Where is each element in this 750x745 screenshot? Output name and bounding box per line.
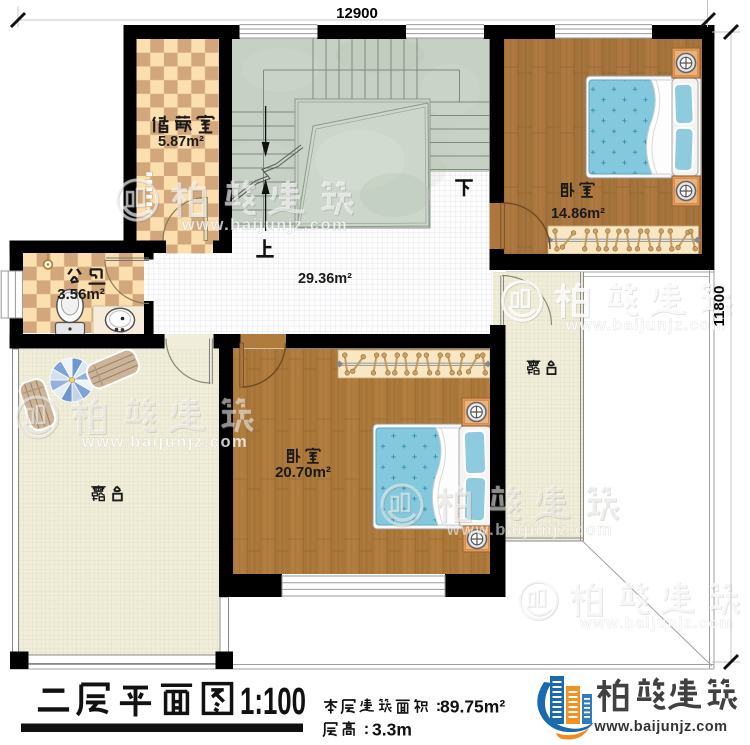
svg-text:1:100: 1:100 <box>240 681 306 723</box>
svg-text:11800: 11800 <box>711 286 728 327</box>
svg-text:3.56m²: 3.56m² <box>57 286 105 303</box>
svg-text:www.baijunjz.com: www.baijunjz.com <box>579 615 735 632</box>
svg-text:3.3m: 3.3m <box>372 720 412 740</box>
svg-text:29.36m²: 29.36m² <box>298 271 352 287</box>
svg-text:www.baijunjz.com: www.baijunjz.com <box>564 317 726 334</box>
svg-text:12900: 12900 <box>336 5 378 22</box>
svg-text:89.75m²: 89.75m² <box>440 697 505 717</box>
svg-text:www.baijunjz.com: www.baijunjz.com <box>446 521 613 539</box>
svg-text:www.baijunjz.com: www.baijunjz.com <box>181 216 348 234</box>
svg-text:5.87m²: 5.87m² <box>158 134 204 150</box>
svg-text:www.baijunjz.com: www.baijunjz.com <box>81 433 248 451</box>
svg-text:14.86m²: 14.86m² <box>551 206 605 222</box>
svg-text:www.baijunjz.com: www.baijunjz.com <box>593 719 727 735</box>
svg-text:20.70m²: 20.70m² <box>275 464 331 481</box>
